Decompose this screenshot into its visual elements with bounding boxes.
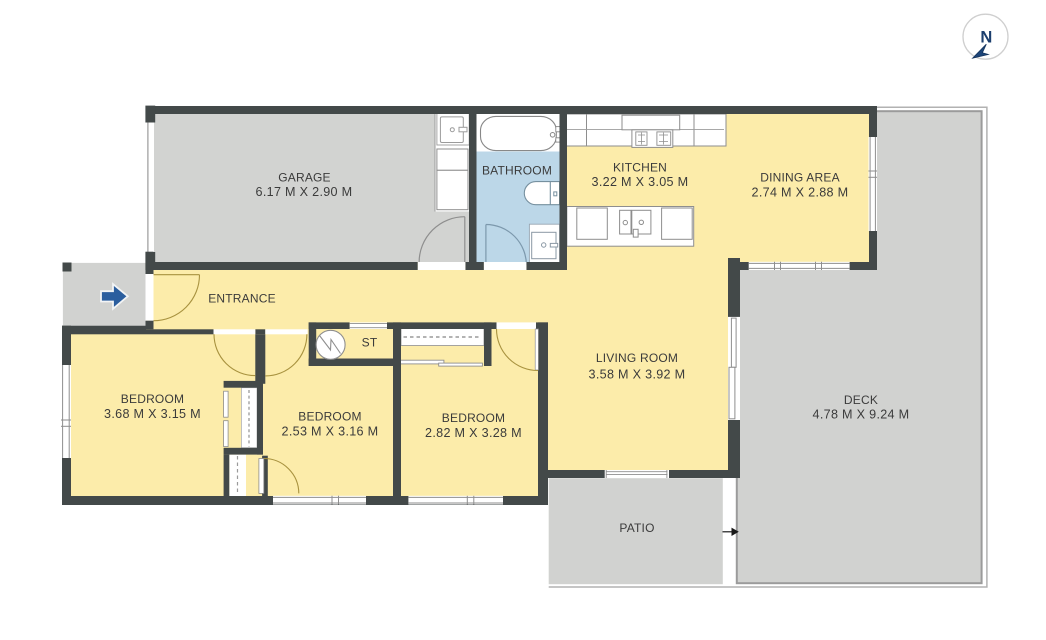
- svg-text:DECK: DECK: [844, 393, 878, 407]
- svg-text:3.22 M X 3.05 M: 3.22 M X 3.05 M: [592, 175, 689, 189]
- svg-text:BEDROOM: BEDROOM: [442, 411, 505, 425]
- svg-text:3.68 M X 3.15 M: 3.68 M X 3.15 M: [104, 407, 201, 421]
- svg-text:LIVING ROOM: LIVING ROOM: [596, 351, 678, 365]
- svg-text:PATIO: PATIO: [619, 521, 654, 535]
- svg-text:DINING AREA: DINING AREA: [760, 171, 840, 185]
- svg-text:BEDROOM: BEDROOM: [298, 410, 361, 424]
- svg-text:N: N: [980, 29, 992, 47]
- svg-text:4.78 M X 9.24 M: 4.78 M X 9.24 M: [813, 408, 910, 422]
- svg-text:3.58 M X 3.92 M: 3.58 M X 3.92 M: [589, 368, 686, 382]
- svg-text:GARAGE: GARAGE: [278, 171, 331, 185]
- svg-text:2.82 M X 3.28 M: 2.82 M X 3.28 M: [425, 426, 522, 440]
- svg-text:ST: ST: [362, 336, 378, 350]
- svg-text:BEDROOM: BEDROOM: [121, 392, 184, 406]
- svg-text:2.74 M X 2.88 M: 2.74 M X 2.88 M: [752, 186, 849, 200]
- svg-text:KITCHEN: KITCHEN: [613, 161, 667, 175]
- svg-text:2.53 M X 3.16 M: 2.53 M X 3.16 M: [282, 425, 379, 439]
- svg-text:6.17 M X 2.90 M: 6.17 M X 2.90 M: [256, 185, 353, 199]
- svg-text:BATHROOM: BATHROOM: [482, 164, 552, 178]
- svg-text:ENTRANCE: ENTRANCE: [208, 292, 276, 306]
